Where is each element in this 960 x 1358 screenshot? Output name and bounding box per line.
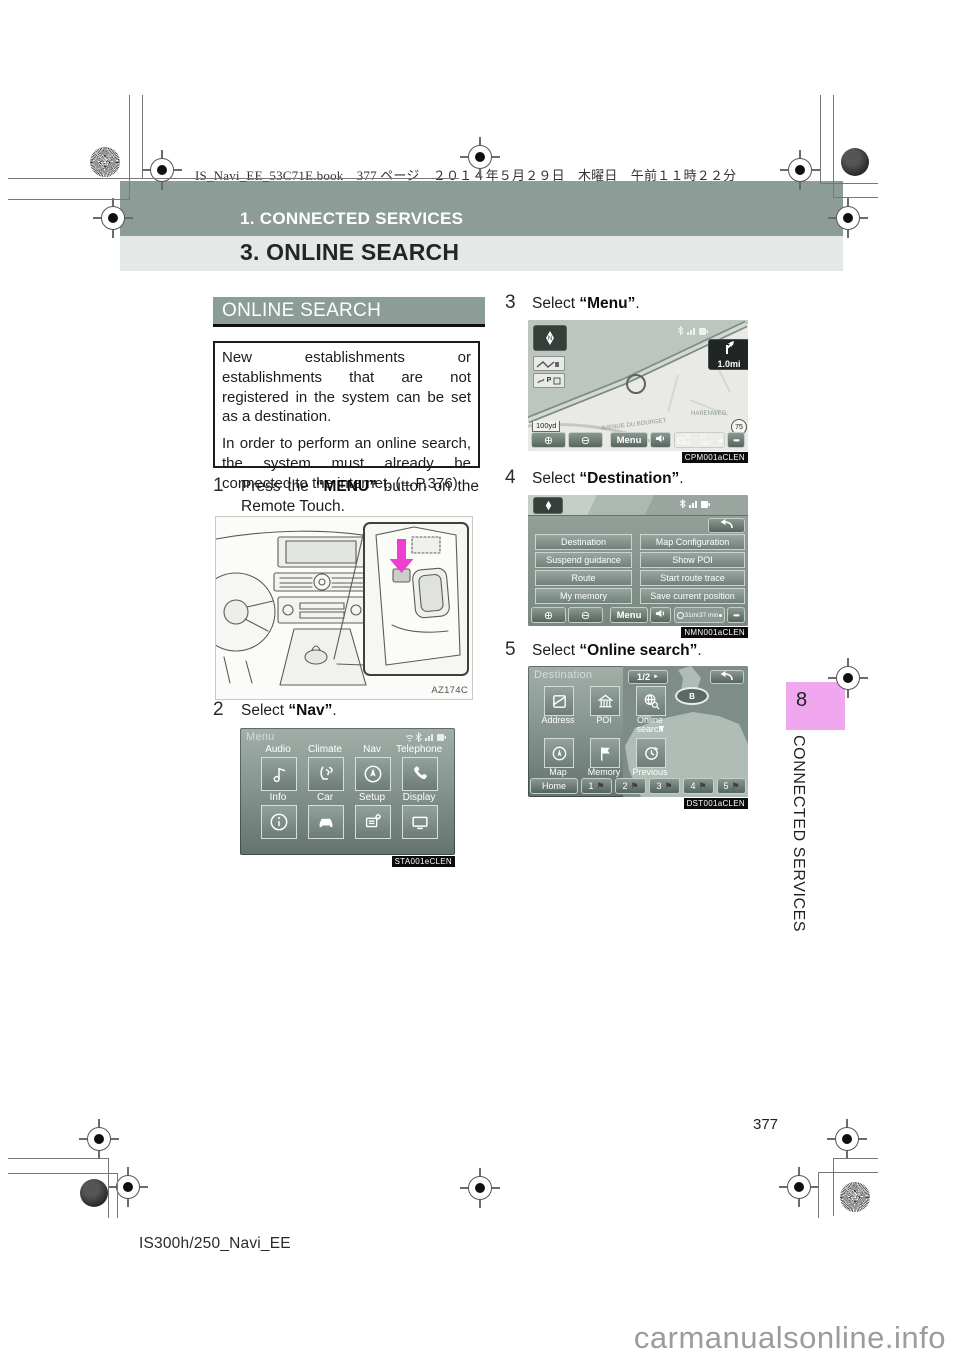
suspend-guidance-button: Suspend guidance (535, 552, 632, 568)
tile-label: Previous (627, 768, 673, 777)
nav-tile (355, 757, 391, 791)
registration-mark (460, 137, 500, 177)
status-icons (676, 326, 712, 336)
crop-mark (8, 1158, 109, 1159)
svg-text:HARENWEG: HARENWEG (691, 411, 727, 417)
dashboard-illustration (216, 517, 472, 687)
watermark: carmanualsonline.info (634, 1320, 946, 1356)
history-clock-icon (642, 744, 661, 763)
phone-icon (409, 763, 431, 785)
voice-button (650, 432, 671, 448)
registration-mark (93, 198, 133, 238)
display-tile (402, 805, 438, 839)
climate-seat-icon (315, 763, 337, 785)
print-coin-mark (80, 1179, 108, 1207)
registration-mark (828, 658, 868, 698)
music-note-icon (268, 763, 290, 785)
flag-icon: ⚑ (596, 782, 604, 791)
print-coin-mark (841, 148, 869, 176)
step-number: 2 (213, 699, 224, 721)
step-instruction: Select “Nav”. (241, 701, 461, 721)
step-instruction: Select “Destination”. (532, 469, 752, 489)
crop-mark (117, 1173, 118, 1218)
chapter-band (120, 181, 843, 236)
b-route-badge: B (675, 687, 709, 705)
step-number: 3 (505, 292, 516, 314)
map-scale: 100yd (532, 421, 560, 432)
crop-mark (8, 1173, 118, 1174)
map-tile (544, 738, 574, 768)
route-distance: 31 mi (684, 433, 700, 447)
step-number: 5 (505, 639, 516, 661)
screen-bottom-bar: ⊕ ⊖ Menu 31 mi 37 min ••• (528, 432, 748, 450)
preset-4-button: 4⚑ (683, 778, 714, 794)
back-arrow-icon (720, 519, 734, 532)
registration-mark (460, 1168, 500, 1208)
tile-label: Info (255, 792, 301, 803)
route-icon (677, 437, 684, 444)
map-menu-button: Menu (610, 432, 648, 448)
step-number: 4 (505, 467, 516, 489)
crop-mark (129, 95, 130, 200)
display-icon (409, 811, 431, 833)
home-button: Home (530, 778, 578, 794)
tile-label: Climate (302, 744, 348, 755)
crop-mark (818, 1172, 878, 1173)
map-screen: HARENWEG AVENUE DU BOURGET N P 1.0mi 100… (528, 320, 748, 451)
page-indicator-button: 1/2 ► (628, 670, 668, 684)
print-starburst-mark (90, 147, 120, 177)
registration-mark (779, 1167, 819, 1207)
crop-mark (8, 199, 129, 200)
flag-icon (596, 744, 615, 763)
my-memory-button: My memory (535, 588, 632, 604)
car-icon (315, 811, 337, 833)
start-route-trace-button: Start route trace (640, 570, 745, 586)
back-button (708, 518, 745, 533)
figure-code: AZ174C (431, 685, 468, 696)
climate-tile (308, 757, 344, 791)
crop-mark (820, 95, 821, 184)
route-info-box: 31mi 37 min (674, 607, 725, 623)
tile-label: Setup (349, 792, 395, 803)
speaker-icon (655, 433, 666, 447)
route-distance: 31mi (684, 612, 698, 619)
globe-search-icon (642, 692, 661, 711)
preset-1-button: 1⚑ (581, 778, 612, 794)
intro-text-box: New establishments or establishments tha… (213, 341, 480, 468)
route-overview-icon (719, 614, 722, 617)
screen-code: DST001aCLEN (684, 798, 748, 809)
screen-code: STA001eCLEN (392, 856, 455, 867)
route-time: 37 min (700, 433, 719, 447)
menu-screen: Menu Audio Climate Nav Telephone In (240, 728, 455, 855)
preset-3-button: 3⚑ (649, 778, 680, 794)
zoom-out-button: ⊖ (568, 432, 603, 448)
info-tile (261, 805, 297, 839)
compass-icon (362, 763, 384, 785)
setup-tile (355, 805, 391, 839)
bank-building-icon (596, 692, 615, 711)
svg-text:N: N (548, 336, 552, 342)
crop-mark (833, 1158, 834, 1216)
registration-mark (142, 150, 182, 190)
tile-label: Address (535, 716, 581, 725)
memory-tile (590, 738, 620, 768)
back-button (710, 670, 744, 684)
compass-button (533, 497, 563, 514)
document-id: IS300h/250_Navi_EE (139, 1235, 291, 1253)
turn-arrow-icon (723, 341, 735, 359)
compass-button: N (533, 325, 567, 351)
step-number: 1 (213, 475, 224, 497)
audio-tile (261, 757, 297, 791)
step-instruction: Select “Online search”. (532, 641, 752, 661)
route-button: Route (535, 570, 632, 586)
destination-screen: Destination 1/2 ► Address POI Online sea… (528, 666, 748, 797)
menu-screen-title: Menu (246, 731, 275, 743)
tile-label: Telephone (396, 744, 442, 755)
zoom-out-button: ⊖ (568, 607, 603, 623)
manual-page: IS_Navi_EE_53C71E.book 377 ページ ２０１４年５月２９… (0, 0, 960, 1358)
voice-button (650, 607, 671, 623)
chapter-title: 1. CONNECTED SERVICES (240, 209, 463, 229)
registration-mark (79, 1119, 119, 1159)
map-option-button (533, 356, 565, 371)
crop-mark (142, 95, 143, 179)
route-icon (677, 612, 684, 619)
map-configuration-button: Map Configuration (640, 534, 745, 550)
parking-option-button: P (533, 373, 565, 388)
crop-mark (833, 1158, 878, 1159)
back-arrow-icon (720, 671, 734, 684)
chapter-tab-number: 8 (796, 689, 807, 712)
flag-icon: ⚑ (630, 782, 638, 791)
poi-tile (590, 686, 620, 716)
tile-label: Map (535, 768, 581, 777)
car-tile (308, 805, 344, 839)
zoom-in-button: ⊕ (531, 432, 566, 448)
nav-menu-screen: Destination Map Configuration Suspend gu… (528, 495, 748, 626)
turn-guidance-box: 1.0mi (708, 339, 748, 370)
dashboard-figure: AZ174C (215, 516, 473, 700)
step-instruction: Press the “MENU” button on the Remote To… (241, 477, 479, 518)
destination-screen-title: Destination (534, 669, 592, 681)
destination-button: Destination (535, 534, 632, 550)
intro-paragraph: New establishments or establishments tha… (222, 348, 471, 427)
tile-label: Nav (349, 744, 395, 755)
section-band (120, 236, 843, 271)
crop-mark (820, 183, 878, 184)
preset-2-button: 2⚑ (615, 778, 646, 794)
flag-icon: ⚑ (731, 782, 739, 791)
chapter-tab-label: CONNECTED SERVICES (789, 735, 807, 932)
tile-label: Audio (255, 744, 301, 755)
route-info-box: 31 mi 37 min (674, 432, 725, 448)
more-options-button: ••• (727, 607, 745, 623)
registration-mark (827, 1119, 867, 1159)
crop-mark (8, 178, 459, 179)
screen-bottom-bar: ⊕ ⊖ Menu 31mi 37 min ••• (528, 607, 748, 625)
crop-mark (818, 1172, 819, 1218)
next-page-arrow-icon: ► (653, 674, 659, 680)
registration-mark (828, 198, 868, 238)
turn-distance: 1.0mi (717, 359, 740, 369)
more-options-button: ••• (727, 432, 745, 448)
compass-icon (550, 744, 569, 763)
previous-tile (636, 738, 666, 768)
save-current-position-button: Save current position (640, 588, 745, 604)
screen-code: NMN001aCLEN (681, 627, 748, 638)
section-title: 3. ONLINE SEARCH (240, 239, 459, 266)
status-icons (678, 499, 714, 509)
address-icon (550, 692, 569, 711)
feature-heading: ONLINE SEARCH (213, 297, 485, 327)
flag-icon: ⚑ (698, 782, 706, 791)
print-starburst-mark (840, 1182, 870, 1212)
info-icon (268, 811, 290, 833)
route-overview-icon (719, 439, 722, 442)
route-time: 37 min (699, 612, 719, 619)
tile-label: POI (581, 716, 627, 725)
speaker-icon (655, 608, 666, 622)
setup-icon (362, 811, 384, 833)
preset-5-button: 5⚑ (717, 778, 746, 794)
flag-icon: ⚑ (664, 782, 672, 791)
tile-label: Display (396, 792, 442, 803)
tile-label: Online search (627, 716, 673, 734)
address-tile (544, 686, 574, 716)
step-instruction: Select “Menu”. (532, 294, 752, 314)
status-icons (404, 732, 450, 742)
registration-mark (780, 150, 820, 190)
tile-label: Memory (581, 768, 627, 777)
screen-code: CPM001aCLEN (682, 452, 748, 463)
tile-label: Car (302, 792, 348, 803)
online-search-tile (636, 686, 666, 716)
telephone-tile (402, 757, 438, 791)
show-poi-button: Show POI (640, 552, 745, 568)
crop-mark (108, 1158, 109, 1218)
crop-mark (833, 197, 878, 198)
page-number: 377 (753, 1116, 778, 1133)
map-menu-button: Menu (610, 607, 648, 623)
zoom-in-button: ⊕ (531, 607, 566, 623)
crop-mark (833, 95, 834, 198)
